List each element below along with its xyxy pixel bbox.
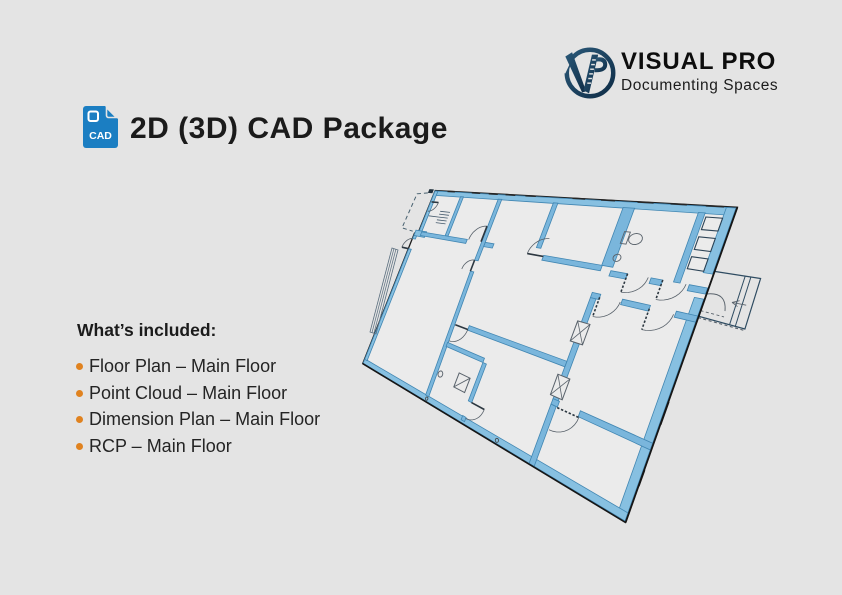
svg-text:CAD: CAD: [89, 130, 112, 142]
